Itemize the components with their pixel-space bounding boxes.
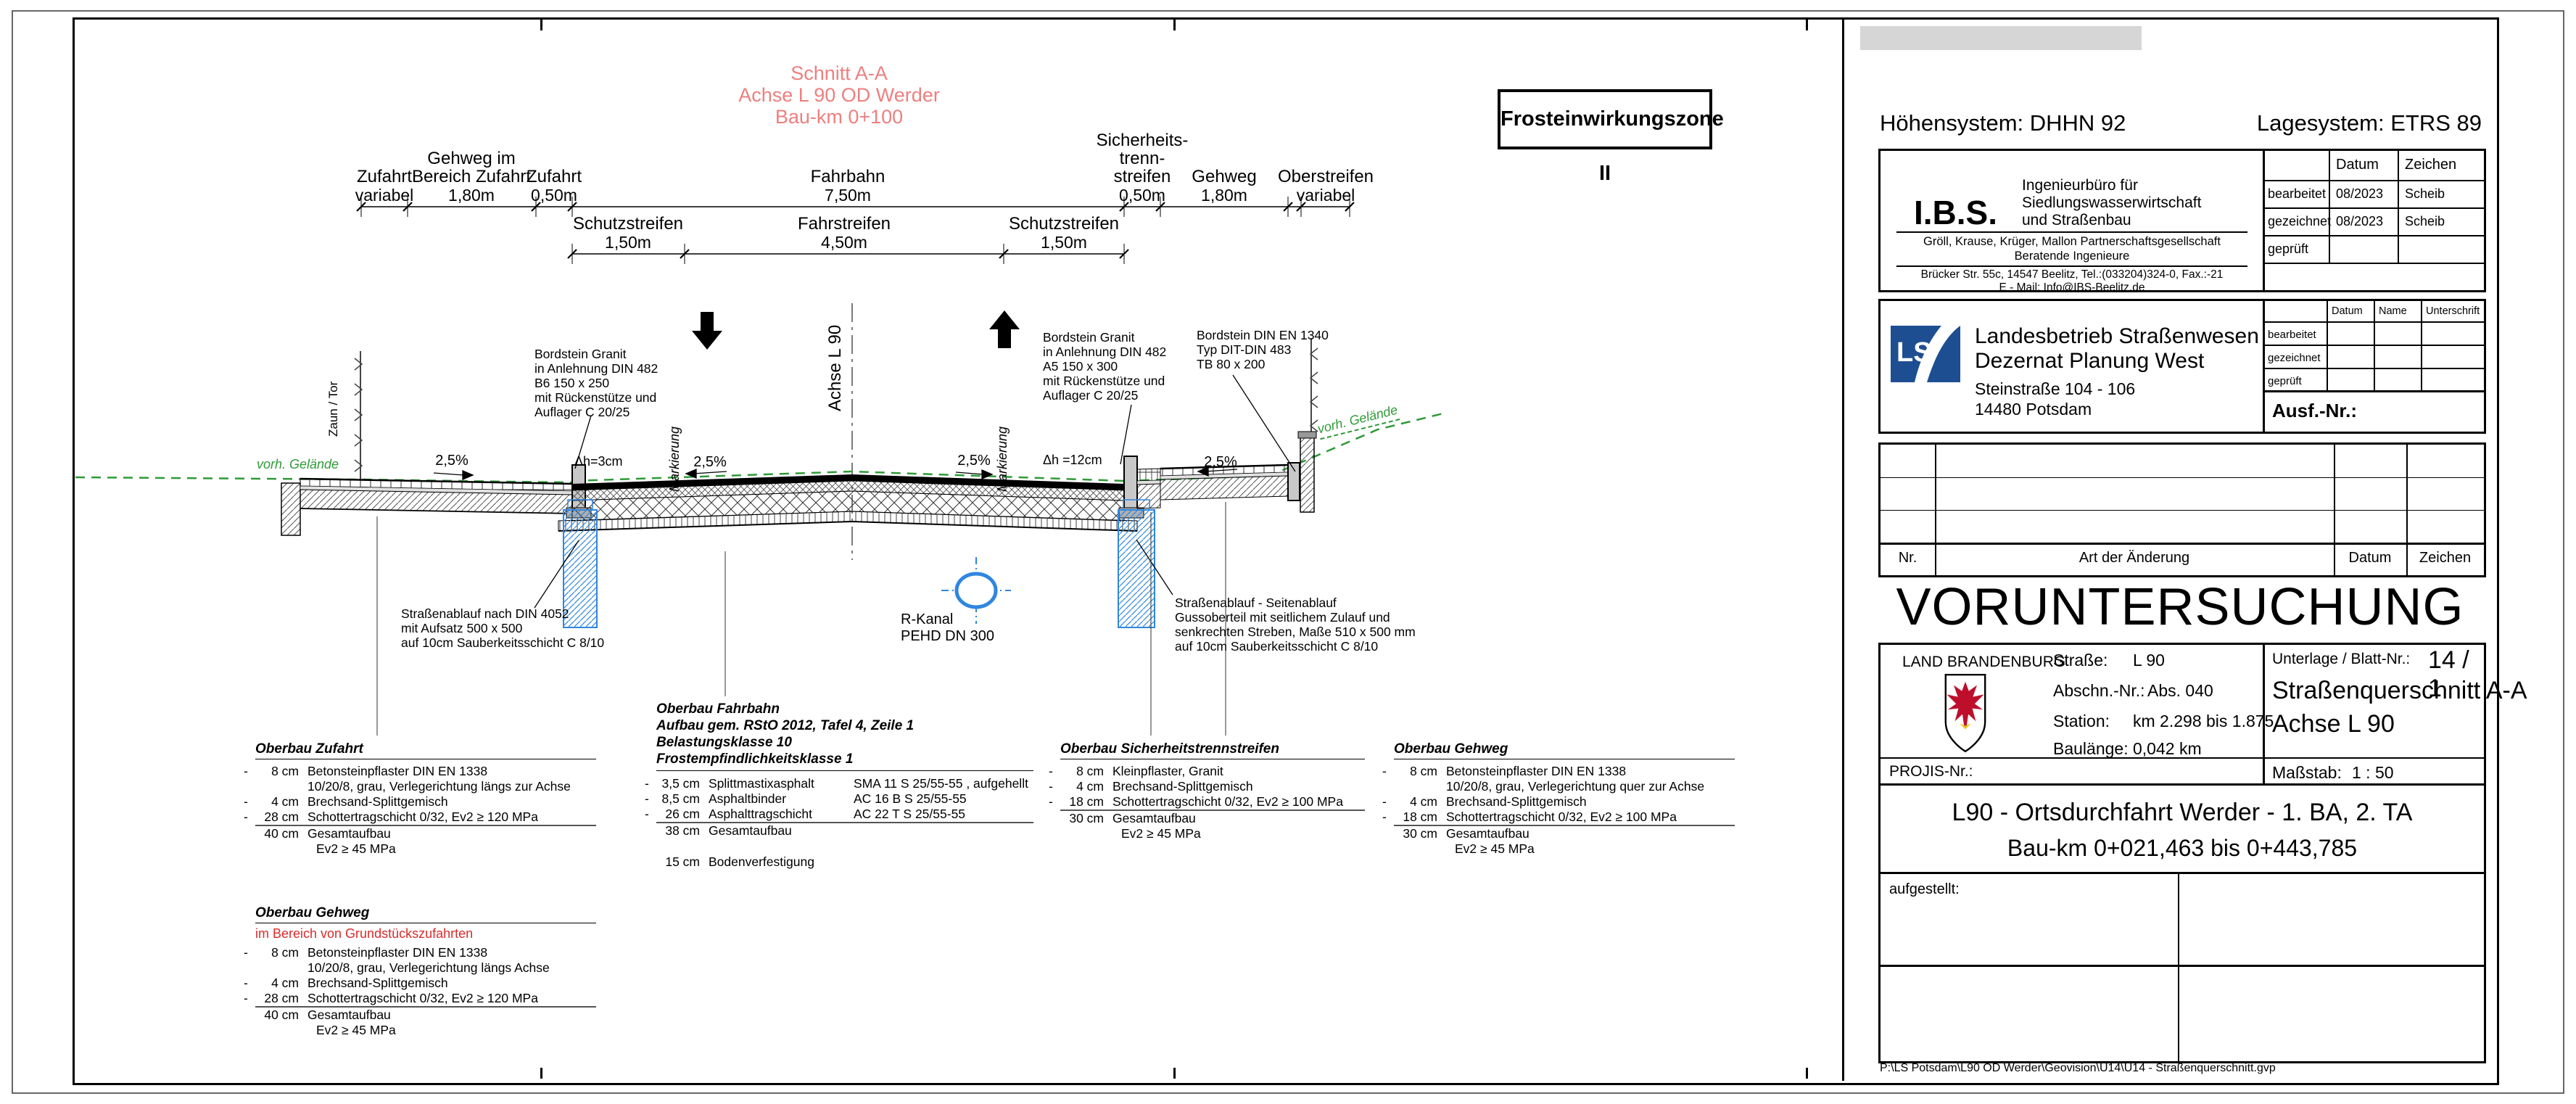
layer-cont: Ev2 ≥ 45 MPa (255, 1023, 596, 1038)
dim-gehweg-links: Gehweg im (406, 149, 537, 168)
annotation-line: Bordstein Granit (1043, 330, 1166, 345)
annotation-line: mit Rückenstütze und (534, 390, 658, 405)
signature-box (1878, 965, 2486, 1063)
left-sidewalk-layers (300, 479, 572, 514)
oberbau-zufahrt: Oberbau Zufahrt 8 cmBetonsteinpflaster D… (255, 741, 596, 857)
layer-text: Gesamtaufbau (1104, 811, 1196, 826)
annotation-line: PEHD DN 300 (901, 628, 994, 645)
layer-text: Schottertragschicht 0/32, Ev2 ≥ 120 MPa (299, 991, 538, 1006)
col-datum: Datum (2327, 301, 2374, 323)
layer-text: Gesamtaufbau (1437, 826, 1529, 841)
frost-zone-box: Frosteinwirkungszone II (1498, 89, 1712, 149)
section-title-line1: Schnitt A-A (730, 62, 948, 84)
layer-qty: 18 cm (1394, 810, 1437, 825)
dim-fahrbahn: Fahrbahn (790, 168, 906, 186)
ibs-line3: und Straßenbau (2022, 212, 2131, 229)
layer-cont: Ev2 ≥ 45 MPa (1394, 841, 1735, 857)
oberbau-title: Oberbau Sicherheitstrennstreifen (1060, 741, 1365, 759)
project-box: LAND BRANDENBURG Straße: L 90 Abschn.-Nr… (1878, 643, 2486, 876)
ibs-beratende: Beratende Ingenieure (1889, 250, 2255, 263)
ls-name2: Dezernat Planung West (1975, 349, 2204, 374)
fence-gate-label: Zaun / Tor (326, 350, 341, 437)
oberbau-title: Oberbau Gehweg (255, 905, 596, 923)
layer-qty: 40 cm (255, 1008, 299, 1023)
dim-zufahrt-2: Zufahrt (496, 168, 612, 186)
annotation-bordstein-right: Bordstein Granit in Anlehnung DIN 482 A5… (1043, 330, 1166, 403)
arrow-up (989, 310, 1020, 348)
strasse-label: Straße: (2053, 651, 2108, 670)
rev-col-zeichen: Zeichen (2406, 550, 2484, 567)
ls-addr2: 14480 Potsdam (1975, 400, 2092, 419)
abschnitt-label: Abschn.-Nr.: (2053, 681, 2145, 701)
axis-label: Achse L 90 (825, 313, 846, 411)
row-bearbeitet: bearbeitet (2265, 181, 2329, 209)
ls-authority-box: LS Landesbetrieb Straßenwesen Dezernat P… (1878, 299, 2486, 434)
rev-col-nr: Nr. (1881, 550, 1935, 567)
dim-oberstreifen: Oberstreifen (1268, 168, 1384, 186)
ibs-rule (1896, 231, 2247, 233)
station-value: km 2.298 bis 1.875 (2133, 712, 2274, 731)
dim-schutz-rechts: Schutzstreifen (1006, 215, 1122, 233)
annotation-line: senkrechten Streben, Maße 510 x 500 mm (1175, 625, 1416, 639)
annotation-line: auf 10cm Sauberkeitsschicht C 8/10 (401, 635, 604, 650)
layer-text: Bodenverfestigung (700, 854, 814, 870)
section-title: Schnitt A-A Achse L 90 OD Werder Bau-km … (730, 62, 948, 128)
scan-artifact-band (1860, 26, 2142, 50)
layer-text: Kleinpflaster, Granit (1104, 764, 1223, 779)
layer-cont: Ev2 ≥ 45 MPa (255, 841, 596, 857)
annotation-bordstein-tb: Bordstein DIN EN 1340 Typ DIT-DIN 483 TB… (1197, 328, 1329, 371)
layer-qty: 4 cm (255, 794, 299, 810)
annotation-line: A5 150 x 300 (1043, 359, 1166, 374)
dim-fahrstreifen-val: 4,50m (786, 234, 902, 251)
layer-text: Betonsteinpflaster DIN EN 1338 (299, 764, 487, 779)
dim-schutz-links-val: 1,50m (570, 234, 686, 251)
project-baukm: Bau-km 0+021,463 bis 0+443,785 (1881, 835, 2484, 862)
oberbau-subtitle-red: im Bereich von Grundstückszufahrten (255, 926, 596, 942)
ls-addr1: Steinstraße 104 - 106 (1975, 379, 2135, 399)
height-system-label: Höhensystem: DHHN 92 (1880, 110, 2126, 136)
terrain-label-left: vorh. Gelände (257, 457, 339, 472)
dim-zufahrt-2-val: 0,50m (496, 186, 612, 204)
ausf-nr-label: Ausf.-Nr.: (2272, 400, 2357, 422)
layer-qty: 8 cm (1060, 764, 1104, 779)
dim-sicherheit1: Sicherheits- (1084, 131, 1200, 149)
projis-label: PROJIS-Nr.: (1889, 763, 1973, 780)
annotation-bordstein-left: Bordstein Granit in Anlehnung DIN 482 B6… (534, 347, 658, 419)
layer-cont: Ev2 ≥ 45 MPa (1060, 826, 1365, 841)
marking-label-left: Markierung (667, 405, 682, 492)
aufgestellt-box: aufgestellt: (1878, 872, 2486, 969)
section-title-line2: Achse L 90 OD Werder (730, 84, 948, 106)
layer-text: Brechsand-Splittgemisch (299, 794, 448, 810)
revision-table: Nr. Art der Änderung Datum Zeichen (1878, 442, 2486, 577)
annotation-line: Gussoberteil mit seitlichem Zulauf und (1175, 610, 1416, 625)
layer-qty: 8 cm (255, 945, 299, 960)
position-system-label: Lagesystem: ETRS 89 (2213, 110, 2482, 136)
row-geprueft: geprüft (2265, 369, 2327, 392)
layer-spec: AC 22 T S 25/55-55 (854, 807, 965, 821)
layer-qty: 4 cm (1060, 779, 1104, 794)
annotation-line: Typ DIT-DIN 483 (1197, 342, 1329, 357)
dim-fahrbahn-val: 7,50m (790, 186, 906, 204)
brandenburg-eagle (1939, 672, 1992, 754)
dim-gehweg-rechts: Gehweg (1166, 168, 1282, 186)
val-zeichen: Scheib (2398, 181, 2486, 209)
oberbau-subtitle: Frostempfindlichkeitsklasse 1 (656, 751, 1033, 771)
fence-left (355, 351, 362, 480)
row-bearbeitet: bearbeitet (2265, 323, 2327, 346)
annotation-line: Straßenablauf - Seitenablauf (1175, 596, 1416, 610)
layer-qty: 28 cm (255, 991, 299, 1006)
oberbau-title: Oberbau Zufahrt (255, 741, 596, 759)
layer-cont: 10/20/8, grau, Verlegerichtung quer zur … (1394, 779, 1735, 794)
drawing-sheet: Schnitt A-A Achse L 90 OD Werder Bau-km … (0, 0, 2576, 1104)
layer-spec: SMA 11 S 25/55-55 , aufgehellt (854, 776, 1028, 791)
layer-qty: 28 cm (255, 810, 299, 825)
layer-qty: 3,5 cm (656, 776, 700, 791)
slope-label-2: 2,5% (685, 454, 735, 471)
ls-logo-text: LS (1896, 337, 1932, 368)
layer-material: Splittmastixasphalt (709, 776, 854, 791)
ls-name1: Landesbetrieb Straßenwesen (1975, 324, 2259, 349)
annotation-line: Auflager C 20/25 (534, 405, 658, 419)
ibs-rule2 (1896, 265, 2247, 267)
col-zeichen: Zeichen (2398, 151, 2486, 181)
ibs-email: E - Mail: Info@IBS-Beelitz.de (1889, 281, 2255, 294)
ls-logo: LS (1891, 326, 1960, 382)
layer-material: Asphalttragschicht (709, 807, 854, 822)
land-brandenburg-label: LAND BRANDENBURG (1902, 654, 2065, 671)
layer-cont: 10/20/8, grau, Verlegerichtung längs zur… (255, 779, 596, 794)
layer-qty: 38 cm (656, 823, 700, 839)
dim-schutz-links: Schutzstreifen (570, 215, 686, 233)
row-gezeichnet: gezeichnet (2265, 346, 2327, 369)
annotation-line: in Anlehnung DIN 482 (1043, 345, 1166, 359)
layer-material: Asphaltbinder (709, 791, 854, 807)
slope-label-3: 2,5% (949, 453, 999, 469)
annotation-line: mit Rückenstütze und (1043, 374, 1166, 388)
ibs-line1: Ingenieurbüro für (2022, 177, 2138, 194)
layer-text: Gesamtaufbau (700, 823, 792, 839)
sheet-title-2: Achse L 90 (2272, 710, 2395, 738)
annotation-line: in Anlehnung DIN 482 (534, 361, 658, 376)
gully-right (1118, 500, 1155, 627)
rev-col-datum: Datum (2334, 550, 2406, 567)
layer-qty: 30 cm (1060, 811, 1104, 826)
layer-text: Betonsteinpflaster DIN EN 1338 (1437, 764, 1626, 779)
rev-col-art: Art der Änderung (1935, 550, 2334, 567)
layer-qty: 4 cm (1394, 794, 1437, 810)
dim-schutz-rechts-val: 1,50m (1006, 234, 1122, 251)
layer-qty: 8,5 cm (656, 791, 700, 807)
layer-text: Brechsand-Splittgemisch (299, 976, 448, 991)
row-gezeichnet: gezeichnet (2265, 209, 2329, 236)
oberbau-title: Oberbau Gehweg (1394, 741, 1735, 759)
ibs-engineer-box: I.B.S. Ingenieurbüro für Siedlungswasser… (1878, 149, 2486, 292)
layer-spec: AC 16 B S 25/55-55 (854, 791, 967, 806)
val-datum: 08/2023 (2329, 209, 2398, 236)
annotation-rkanal: R-Kanal PEHD DN 300 (901, 611, 994, 645)
left-end-block (281, 483, 300, 535)
ibs-line2: Siedlungswasserwirtschaft (2022, 194, 2201, 212)
annotation-line: Bordstein DIN EN 1340 (1197, 328, 1329, 342)
layer-text: Brechsand-Splittgemisch (1104, 779, 1253, 794)
safety-strip-layers (1137, 469, 1160, 508)
verge-end-cap (1298, 432, 1316, 438)
dim-sicherheit2: trenn- (1084, 149, 1200, 168)
ibs-partners: Gröll, Krause, Krüger, Mallon Partnersch… (1889, 235, 2255, 249)
verge-end-block (1300, 435, 1314, 512)
oberbau-subtitle: Aufbau gem. RStO 2012, Tafel 4, Zeile 1 (656, 717, 1033, 734)
annotation-line: Straßenablauf nach DIN 4052 (401, 606, 604, 621)
layer-text: Gesamtaufbau (299, 1008, 391, 1023)
delta-h-right: Δh =12cm (1043, 453, 1102, 468)
file-path: P:\LS Potsdam\L90 OD Werder\Geovision\U1… (1880, 1062, 2276, 1075)
station-label: Station: (2053, 712, 2110, 731)
ibs-sign-table: Datum Zeichen bearbeitet 08/2023 Scheib … (2263, 151, 2484, 290)
baulaenge-label: Baulänge: (2053, 739, 2129, 759)
slope-label-1: 2,5% (426, 453, 477, 469)
oberbau-fahrbahn: Oberbau Fahrbahn Aufbau gem. RStO 2012, … (656, 701, 1033, 870)
delta-h-left: Δh=3cm (574, 454, 623, 469)
carriageway-layers (558, 474, 1137, 531)
massstab-label: Maßstab: (2272, 763, 2342, 783)
annotation-ablauf-right: Straßenablauf - Seitenablauf Gussobertei… (1175, 596, 1416, 654)
slope-label-4: 2,5% (1195, 454, 1246, 471)
annotation-line: Bordstein Granit (534, 347, 658, 361)
layer-text: Schottertragschicht 0/32, Ev2 ≥ 100 MPa (1437, 810, 1677, 825)
project-name: L90 - Ortsdurchfahrt Werder - 1. BA, 2. … (1881, 799, 2484, 827)
oberbau-gehweg: Oberbau Gehweg 8 cmBetonsteinpflaster DI… (1394, 741, 1735, 857)
layer-text: Betonsteinpflaster DIN EN 1338 (299, 945, 487, 960)
sheet-title-1: Straßenquerschnitt A-A (2272, 677, 2527, 705)
annotation-line: B6 150 x 250 (534, 376, 658, 390)
col-unterschrift: Unterschrift (2421, 301, 2486, 323)
annotation-line: TB 80 x 200 (1197, 357, 1329, 371)
ls-sign-table: Datum Name Unterschrift bearbeitet gezei… (2263, 301, 2484, 432)
val-datum: 08/2023 (2329, 181, 2398, 209)
layer-qty: 26 cm (656, 807, 700, 822)
massstab-value: 1 : 50 (2352, 763, 2394, 783)
col-name: Name (2374, 301, 2421, 323)
oberbau-gehweg-zufahrten: Oberbau Gehweg im Bereich von Grundstück… (255, 905, 596, 1038)
marking-label-right: Markierung (995, 405, 1010, 492)
strasse-value: L 90 (2133, 651, 2165, 670)
phase-title: VORUNTERSUCHUNG (1878, 577, 2482, 637)
col-datum: Datum (2329, 151, 2398, 181)
dim-oberstreifen-val: variabel (1268, 186, 1384, 204)
layer-qty: 8 cm (255, 764, 299, 779)
layer-text: Schottertragschicht 0/32, Ev2 ≥ 120 MPa (299, 810, 538, 825)
layer-qty: 18 cm (1060, 794, 1104, 810)
ibs-logo: I.B.S. (1914, 193, 1997, 232)
oberbau-title: Oberbau Fahrbahn (656, 701, 1033, 717)
annotation-line: R-Kanal (901, 611, 994, 628)
layer-text: Schottertragschicht 0/32, Ev2 ≥ 100 MPa (1104, 794, 1343, 810)
section-title-line3: Bau-km 0+100 (730, 106, 948, 128)
layer-text: Brechsand-Splittgemisch (1437, 794, 1587, 810)
layer-qty: 4 cm (255, 976, 299, 991)
layer-qty: 8 cm (1394, 764, 1437, 779)
annotation-line: mit Aufsatz 500 x 500 (401, 621, 604, 635)
abschnitt-value: Abs. 040 (2147, 681, 2213, 701)
oberbau-subtitle: Belastungsklasse 10 (656, 734, 1033, 751)
val-zeichen: Scheib (2398, 209, 2486, 236)
dim-gehweg-rechts-val: 1,80m (1166, 186, 1282, 204)
curb-right (1124, 456, 1137, 508)
dim-fahrstreifen: Fahrstreifen (786, 215, 902, 233)
layer-qty: 40 cm (255, 826, 299, 841)
annotation-ablauf-left: Straßenablauf nach DIN 4052 mit Aufsatz … (401, 606, 604, 650)
ibs-address: Brücker Str. 55c, 14547 Beelitz, Tel.:(0… (1889, 268, 2255, 281)
annotation-line: Auflager C 20/25 (1043, 388, 1166, 403)
arrow-down (692, 312, 722, 350)
layer-qty: 30 cm (1394, 826, 1437, 841)
annotation-line: auf 10cm Sauberkeitsschicht C 8/10 (1175, 639, 1416, 654)
oberbau-sicherheitstrennstreifen: Oberbau Sicherheitstrennstreifen 8 cmKle… (1060, 741, 1365, 841)
layer-text: Gesamtaufbau (299, 826, 391, 841)
row-geprueft: geprüft (2265, 236, 2329, 264)
layer-qty: 15 cm (656, 854, 700, 870)
baulaenge-value: 0,042 km (2133, 739, 2202, 759)
unterlage-label: Unterlage / Blatt-Nr.: (2272, 651, 2410, 668)
aufgestellt-label: aufgestellt: (1889, 881, 1960, 898)
layer-cont: 10/20/8, grau, Verlegerichtung längs Ach… (255, 960, 596, 976)
